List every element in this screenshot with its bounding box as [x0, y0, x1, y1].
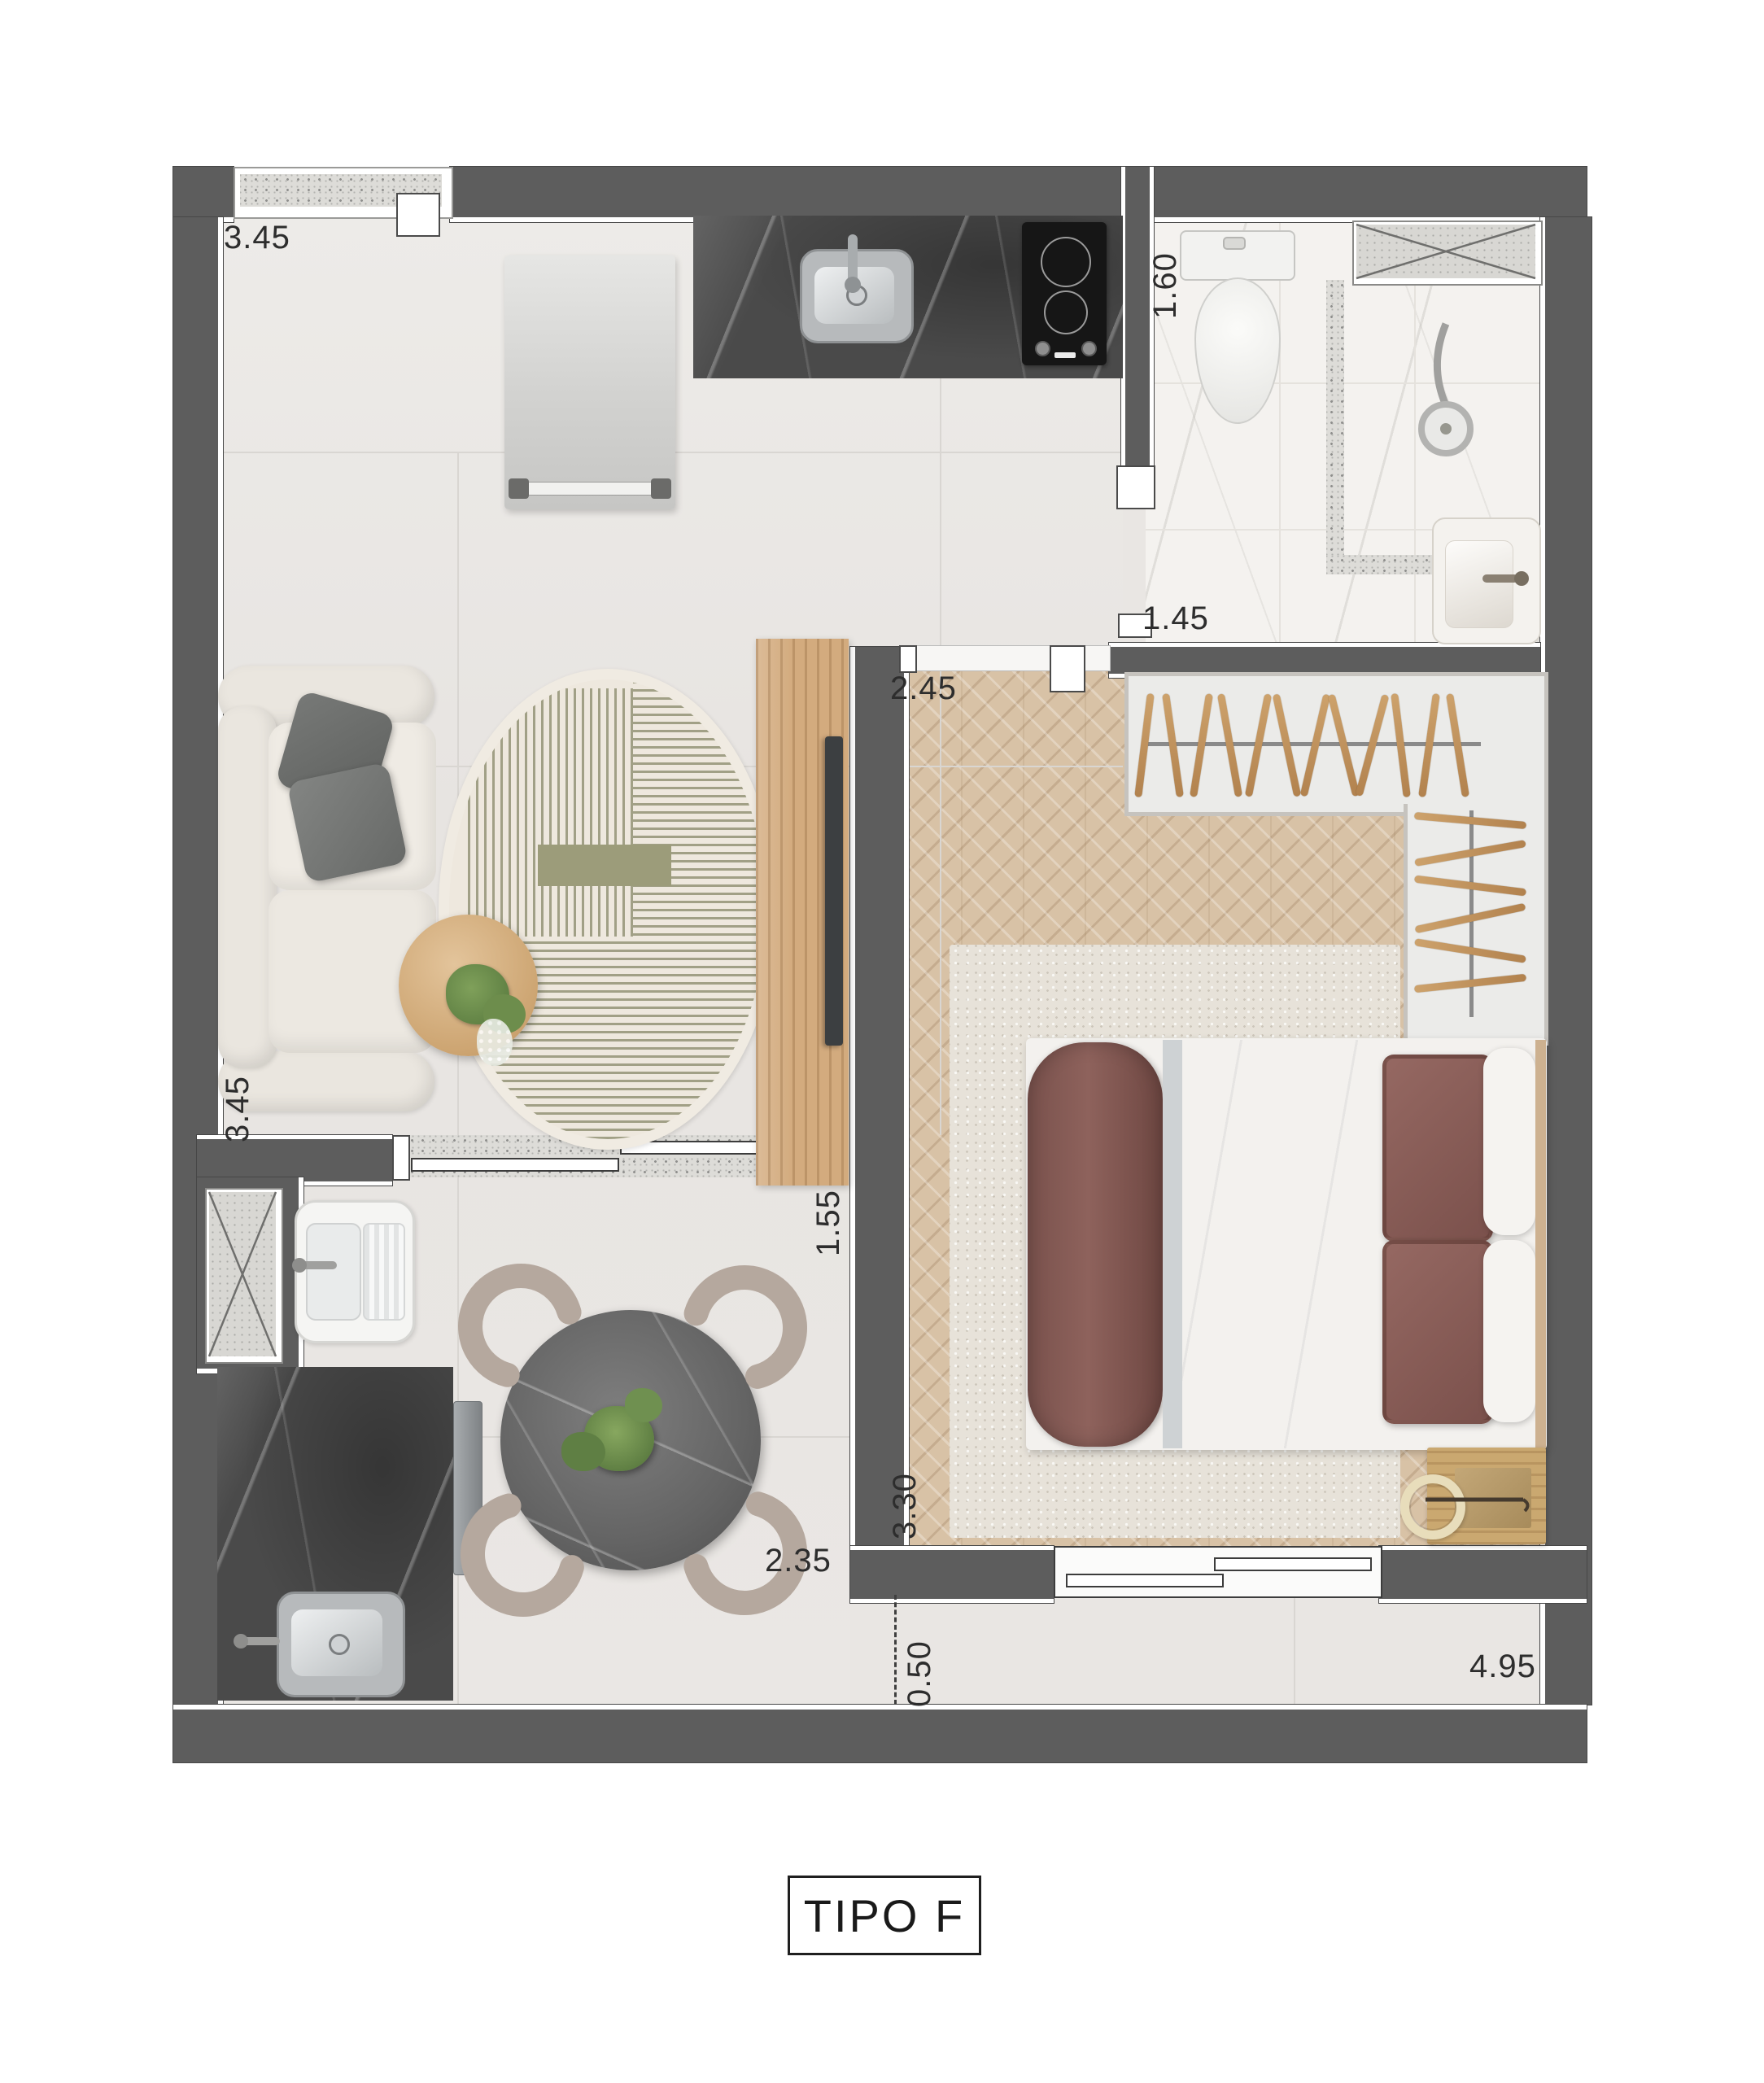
bed-runner-blanket [1028, 1042, 1163, 1447]
hanger-icon [1414, 876, 1526, 897]
bath-niche-hatch [1356, 225, 1535, 278]
bedroom-window [1054, 1546, 1382, 1598]
closet-hangers-side [1411, 814, 1533, 1017]
bed-pillow-white [1483, 1048, 1535, 1235]
hanger-icon [1190, 693, 1213, 797]
hanger-icon [1446, 693, 1469, 797]
bathroom-door-stop [1116, 465, 1155, 509]
hanger-icon [1418, 693, 1440, 797]
bedroom-door-stop [1050, 645, 1085, 692]
television [825, 736, 843, 1046]
rug-stripe-block [633, 679, 766, 1139]
service-sink-drain [329, 1634, 350, 1655]
bed-pillow-brown [1382, 1240, 1493, 1424]
hanger-icon [1328, 694, 1360, 797]
dim-bath-width: 1.60 [1148, 225, 1182, 347]
dim-bath-door: 1.45 [1142, 602, 1209, 635]
wall-top [450, 167, 1587, 222]
wall-bedroom-bottom-right [1379, 1546, 1587, 1603]
plan-title-box: TIPO F [788, 1876, 981, 1955]
hanger-icon [1391, 693, 1411, 797]
laundry-tub-basin [306, 1223, 361, 1321]
hanger-icon [1245, 693, 1272, 797]
hanger-icon [1414, 812, 1526, 829]
sliding-door-jamb [392, 1135, 410, 1181]
entry-door-jamb [396, 193, 440, 237]
refrigerator-handle [515, 482, 666, 496]
bedroom-window-pane [1066, 1574, 1224, 1587]
dim-hall-width: 1.55 [811, 1162, 845, 1284]
setback-floor-strip [850, 1595, 1540, 1705]
plant-flowers [477, 1019, 513, 1066]
wall-bottom [173, 1705, 1587, 1762]
wall-top-left [173, 167, 234, 222]
hanger-icon [1414, 840, 1526, 867]
dim-dining-width: 2.35 [765, 1544, 832, 1577]
dim-setback: 0.50 [902, 1613, 937, 1735]
laundry-washboard [363, 1223, 405, 1321]
dining-plant-leaf [561, 1432, 605, 1471]
floor-plan-canvas: 3.45 1.60 1.45 2.45 3.45 1.55 3.30 2.35 … [0, 0, 1764, 2083]
cooktop-burner [1044, 290, 1088, 334]
dim-living-depth: 3.45 [220, 1048, 255, 1170]
dining-plant-leaf [625, 1388, 662, 1422]
bed-duvet [1182, 1040, 1373, 1448]
refrigerator-hinge [509, 478, 529, 499]
closet-hangers-top [1141, 690, 1491, 801]
dim-bedroom-depth: 3.30 [888, 1445, 922, 1567]
hanger-icon [1300, 694, 1331, 797]
bed-pillow-white [1483, 1240, 1535, 1422]
bed-headboard [1535, 1040, 1546, 1448]
rug-accent-bar [538, 845, 671, 886]
bedroom-door-jamb [899, 645, 917, 673]
dim-bedroom-width: 2.45 [890, 672, 957, 705]
hanger-icon [1273, 693, 1301, 797]
nightstand-lamp [1400, 1474, 1465, 1539]
tile-joint [940, 378, 941, 1135]
dim-top-width: 3.45 [224, 221, 290, 254]
hanger-icon [1162, 693, 1184, 797]
wall-left [173, 217, 223, 1705]
dimension-dashed-line [894, 1595, 897, 1705]
hanger-icon [1415, 903, 1526, 933]
service-shaft-hatch [209, 1192, 276, 1356]
bed-pillow-brown [1382, 1055, 1493, 1242]
sofa-pillow [286, 762, 408, 883]
sliding-door-panel [411, 1158, 619, 1172]
wall-bedroom-bottom-left [850, 1546, 1054, 1603]
bedroom-window-pane [1214, 1557, 1372, 1571]
kitchen-sink-drain [846, 285, 867, 306]
refrigerator-hinge [651, 478, 671, 499]
bathroom-washbasin-bowl [1445, 540, 1513, 628]
hanger-icon [1217, 693, 1242, 797]
hanger-icon [1414, 938, 1526, 963]
cooktop-display [1054, 352, 1076, 358]
nightstand-tray [1455, 1468, 1531, 1528]
hanger-icon [1356, 694, 1390, 797]
rug-stripe-block [468, 688, 633, 937]
washer-front [453, 1401, 482, 1575]
tile-joint [1294, 1595, 1295, 1705]
dim-bottom-width: 4.95 [1469, 1650, 1536, 1683]
cooktop-knob [1081, 341, 1097, 356]
bed-sheet-fold [1163, 1040, 1182, 1448]
living-room-rug [439, 669, 777, 1150]
cooktop-knob [1035, 341, 1050, 356]
toilet-tank [1180, 230, 1295, 281]
shower-border [1326, 280, 1344, 574]
cooktop-burner [1041, 237, 1091, 287]
hanger-icon [1414, 974, 1526, 993]
refrigerator [504, 255, 675, 509]
plan-title: TIPO F [804, 1889, 965, 1942]
